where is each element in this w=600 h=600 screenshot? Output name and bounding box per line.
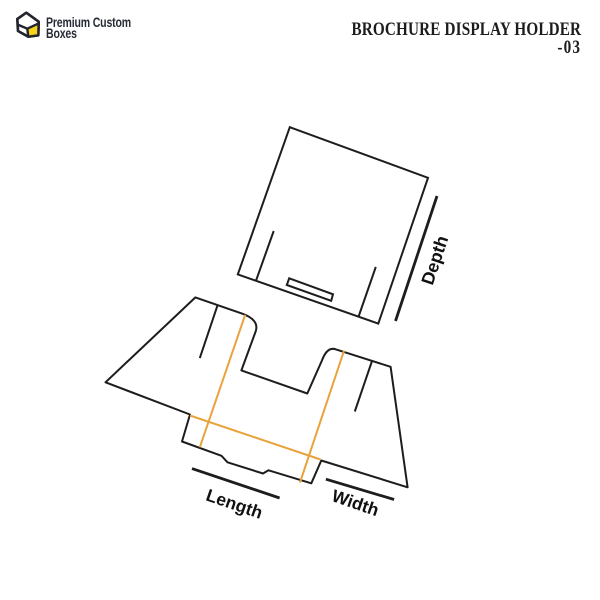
svg-text:Width: Width bbox=[329, 485, 381, 520]
